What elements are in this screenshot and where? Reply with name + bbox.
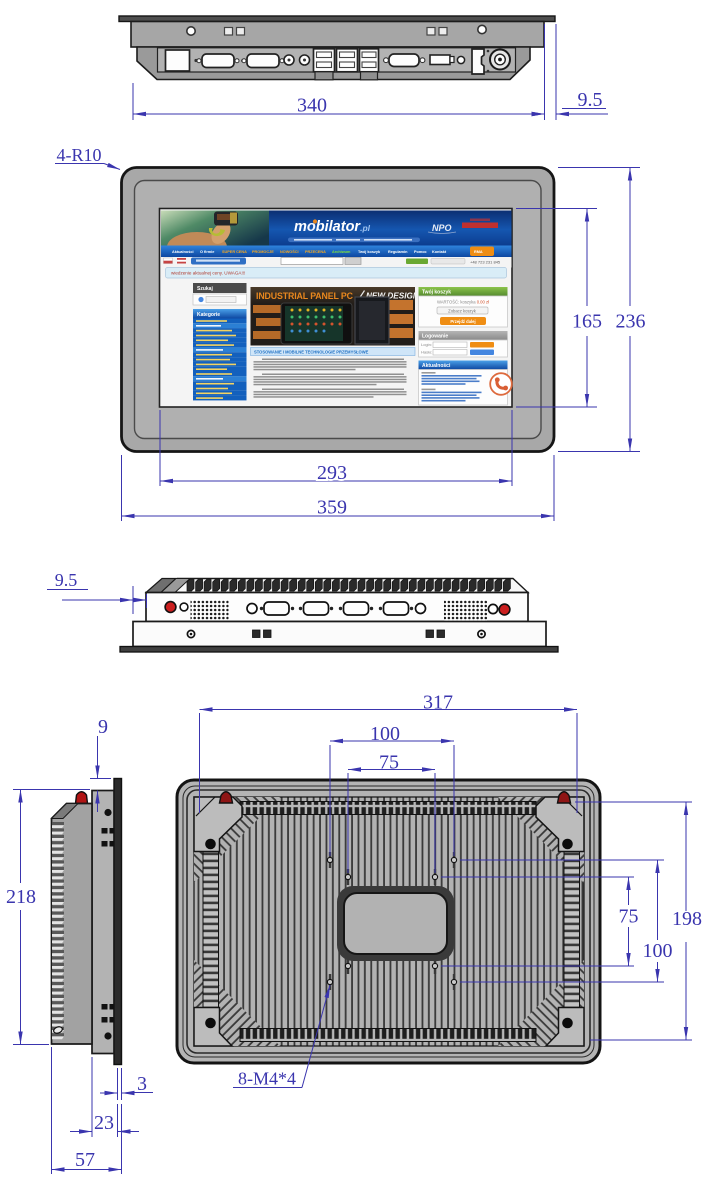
svg-text:75: 75 — [379, 752, 399, 774]
svg-text:3: 3 — [137, 1073, 147, 1095]
svg-text:198: 198 — [672, 908, 702, 930]
svg-text:Archiwum: Archiwum — [332, 250, 351, 254]
svg-text:Logowanie: Logowanie — [422, 334, 448, 340]
svg-text:NOWOŚCI: NOWOŚCI — [280, 249, 299, 254]
svg-text:8-M4*4: 8-M4*4 — [238, 1069, 296, 1089]
svg-text:Pomoc: Pomoc — [414, 250, 427, 254]
svg-text:359: 359 — [317, 497, 347, 519]
svg-text:Szukaj: Szukaj — [197, 286, 213, 292]
svg-text:PRZECENA: PRZECENA — [305, 250, 326, 254]
svg-text:Login:: Login: — [421, 342, 432, 347]
svg-text:WARTOŚĆ: koszyka 0.00 zł: WARTOŚĆ: koszyka 0.00 zł — [437, 300, 489, 305]
svg-text:Twój koszyk: Twój koszyk — [358, 250, 381, 254]
svg-text:Kontakt: Kontakt — [432, 250, 447, 254]
svg-text:Twój koszyk: Twój koszyk — [422, 290, 451, 296]
svg-text:165: 165 — [572, 311, 602, 333]
svg-text:75: 75 — [619, 906, 639, 928]
svg-text:Aktualności: Aktualności — [422, 363, 451, 369]
svg-text:wiedzenie aktualnej ceny. UWAG: wiedzenie aktualnej ceny. UWAGA!!! — [171, 271, 245, 276]
svg-text:9.5: 9.5 — [55, 570, 78, 590]
svg-text:100: 100 — [370, 723, 400, 745]
svg-text:mobilator.pl: mobilator.pl — [294, 219, 371, 235]
svg-text:NPO: NPO — [432, 223, 452, 233]
svg-text:57: 57 — [75, 1149, 95, 1171]
svg-text:Aktualności: Aktualności — [172, 250, 194, 254]
svg-text:9.5: 9.5 — [578, 89, 603, 111]
svg-text:STOSOWANIE I MOBILNE TECHNOLOG: STOSOWANIE I MOBILNE TECHNOLOGIE PRZEMYS… — [254, 349, 369, 354]
svg-text:+48 723 231 845: +48 723 231 845 — [470, 260, 501, 265]
svg-text:4-R10: 4-R10 — [57, 145, 102, 165]
svg-text:Przejdź dalej: Przejdź dalej — [450, 319, 475, 324]
svg-text:RMA: RMA — [474, 250, 483, 254]
svg-text:Hasło:: Hasło: — [421, 350, 432, 355]
svg-text:100: 100 — [643, 940, 673, 962]
svg-text:317: 317 — [423, 692, 453, 714]
svg-text:218: 218 — [6, 886, 36, 908]
svg-text:Kategorie: Kategorie — [197, 312, 220, 318]
svg-text:340: 340 — [297, 95, 327, 117]
svg-text:Zobacz koszyk: Zobacz koszyk — [448, 308, 477, 313]
svg-text:293: 293 — [317, 462, 347, 484]
svg-text:PROMOCJE: PROMOCJE — [252, 250, 274, 254]
svg-text:SUPER CENA: SUPER CENA — [222, 250, 247, 254]
svg-text:Regulamin: Regulamin — [388, 250, 408, 254]
svg-text:236: 236 — [616, 311, 646, 333]
svg-text:23: 23 — [94, 1112, 114, 1134]
svg-text:INDUSTRIAL PANEL PC: INDUSTRIAL PANEL PC — [256, 291, 354, 301]
svg-text:O firmie: O firmie — [200, 250, 214, 254]
svg-text:9: 9 — [98, 716, 108, 738]
